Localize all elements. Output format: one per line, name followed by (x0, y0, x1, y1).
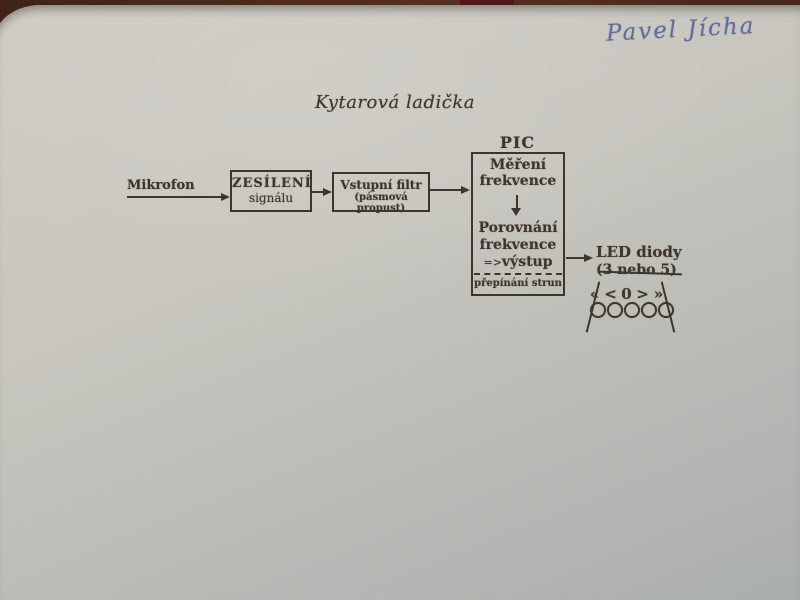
arrow-filter-pic-line (429, 189, 463, 191)
paper-content: Pavel Jícha Kytarová ladička Mikrofon ZE… (0, 0, 800, 600)
led-row (590, 302, 674, 318)
symbol-right: > (636, 285, 649, 303)
filter-box-line1: Vstupní filtr (334, 178, 428, 192)
tuning-direction-symbols: « < 0 > » (588, 285, 665, 303)
led-circle (607, 302, 623, 318)
arrowhead-filter-pic (461, 186, 470, 194)
led-count-struck: nebo 5 (617, 262, 670, 278)
mikrofon-label: Mikrofon (127, 178, 195, 193)
symbol-center: 0 (620, 285, 633, 303)
arrow-pic-led-line (566, 257, 586, 259)
pic-footer-label: přepínání strun (473, 278, 563, 289)
pic-measure-line1: Měření (473, 157, 563, 173)
led-circle (624, 302, 640, 318)
arrowhead-pic-led (584, 254, 593, 262)
pic-dashed-divider (474, 273, 562, 275)
pic-output-text: výstup (502, 254, 553, 270)
pic-output-line: =>výstup (473, 254, 563, 271)
implies-symbol: => (483, 256, 501, 269)
paper-sheet: Pavel Jícha Kytarová ladička Mikrofon ZE… (0, 5, 800, 600)
symbol-left: < (604, 285, 617, 303)
pic-measure-line2: frekvence (473, 173, 563, 189)
led-circle (641, 302, 657, 318)
arrow-mikrofon-line (127, 196, 223, 198)
pic-compare-line1: Porovnání (473, 220, 563, 236)
filter-box-line2: (pásmová propust) (334, 192, 428, 214)
handwritten-name: Pavel Jícha (605, 11, 786, 46)
led-label: LED diody (596, 243, 682, 261)
arrowhead-amp-filter (323, 188, 332, 196)
amp-box-line1: ZESÍLENÍ (232, 176, 310, 191)
amp-box-line2: signálu (232, 191, 310, 205)
pic-label: PIC (471, 133, 564, 152)
arrowhead-mikrofon (221, 193, 230, 201)
amp-box: ZESÍLENÍ signálu (230, 170, 312, 212)
diagram-title: Kytarová ladička (305, 92, 485, 113)
pic-down-arrowhead (511, 208, 521, 216)
pic-compare-line2: frekvence (473, 237, 563, 253)
filter-box: Vstupní filtr (pásmová propust) (332, 172, 430, 212)
pic-box: Měření frekvence Porovnání frekvence =>v… (471, 152, 565, 296)
led-count-close: ) (670, 262, 677, 278)
photo-scene: Pavel Jícha Kytarová ladička Mikrofon ZE… (0, 0, 800, 600)
pic-down-arrow-line (516, 195, 518, 209)
